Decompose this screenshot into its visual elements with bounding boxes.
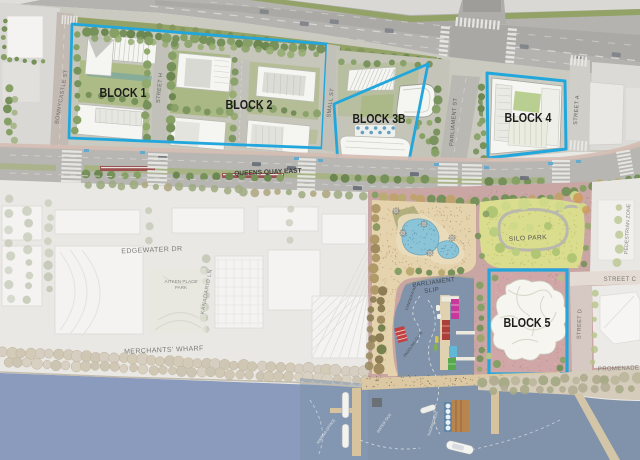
- svg-text:STREET C: STREET C: [604, 277, 637, 283]
- svg-text:PARK: PARK: [175, 285, 188, 290]
- svg-text:BLOCK 3B: BLOCK 3B: [353, 111, 406, 126]
- svg-text:BLOCK 2: BLOCK 2: [226, 97, 273, 112]
- svg-text:BLOCK 1: BLOCK 1: [100, 85, 147, 100]
- svg-text:STREET D: STREET D: [576, 309, 583, 340]
- svg-text:BLOCK 4: BLOCK 4: [505, 110, 553, 125]
- svg-text:AITKEN PLACE: AITKEN PLACE: [165, 279, 198, 284]
- svg-text:BLOCK 5: BLOCK 5: [504, 315, 551, 330]
